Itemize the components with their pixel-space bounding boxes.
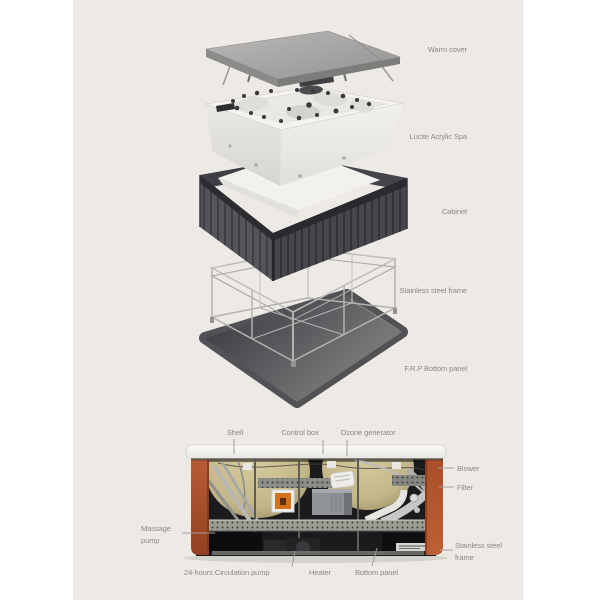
warm-cover-illustration (206, 31, 400, 87)
cross-section-illustration (184, 426, 448, 563)
label-massage-pump: Massage pump (141, 523, 175, 546)
label-warm-cover: Warm cover (428, 45, 467, 55)
label-stainless-steel-frame: Stainless steel frame (455, 540, 503, 563)
label-heater: Heater (309, 568, 331, 578)
product-diagram-page: Warm cover Lucite Acrylic Spa Cabinet St… (0, 0, 600, 600)
label-control-box: Control box (270, 428, 330, 438)
label-filter: Filter (457, 483, 473, 493)
label-steel-frame: Stainless steel frame (399, 286, 467, 296)
label-cabinet: Cabinet (442, 207, 467, 217)
label-shell: Shell (215, 428, 255, 438)
label-acrylic-spa: Lucite Acrylic Spa (410, 132, 467, 142)
label-circulation-pump: 24-hours Circulation pump (184, 568, 269, 578)
label-ozone-generator: Ozone generator (330, 428, 406, 438)
illustrations (0, 0, 600, 600)
label-frp-panel: F.R.P Bottom panel (404, 364, 467, 374)
frp-panel-illustration (205, 295, 402, 402)
label-blower: Blower (457, 464, 479, 474)
label-bottom-panel: Bottom panel (355, 568, 398, 578)
